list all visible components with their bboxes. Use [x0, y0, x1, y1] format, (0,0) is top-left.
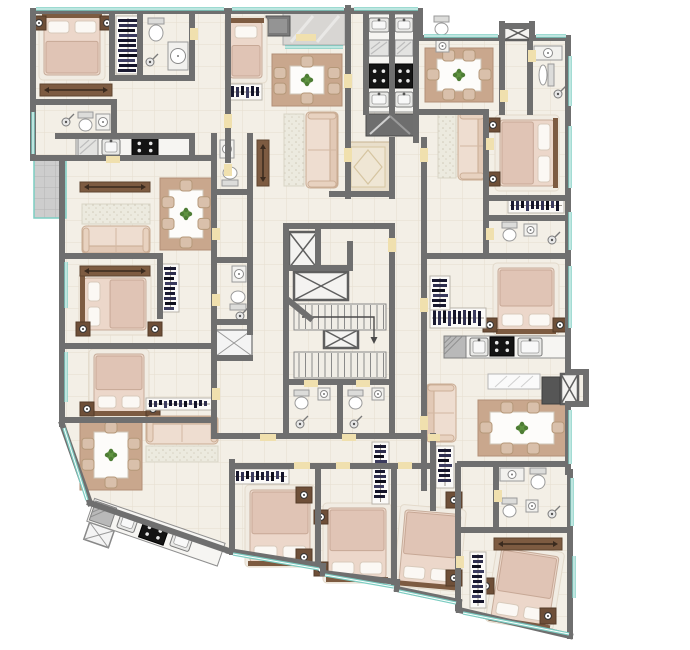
floor-plan — [0, 0, 690, 650]
floor-plan-canvas — [0, 0, 690, 650]
